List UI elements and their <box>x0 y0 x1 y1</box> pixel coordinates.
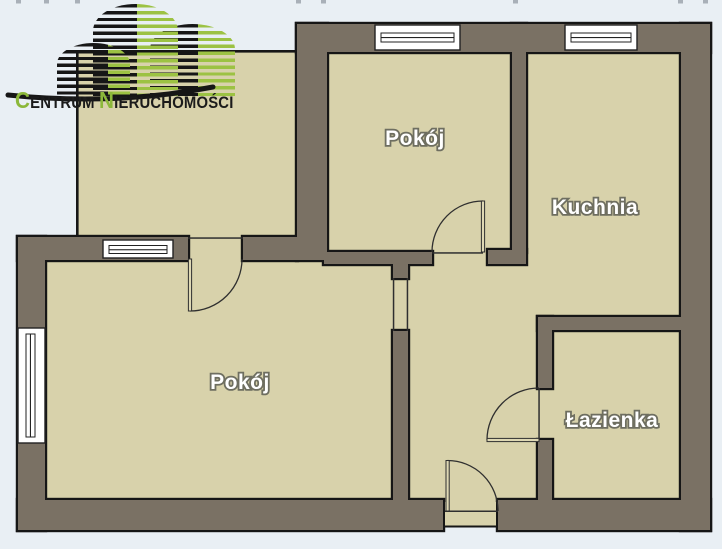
wall-hall-divider <box>393 331 408 503</box>
label-kitchen: Kuchnia <box>552 196 638 219</box>
floor-lower-rooms <box>43 237 683 502</box>
wall-divider-left <box>297 24 327 260</box>
label-bathroom: Łazienka <box>566 409 659 432</box>
window-top-2 <box>565 25 637 50</box>
wall-bottom-left <box>18 500 443 530</box>
brand-initial-n: N <box>99 87 114 113</box>
wall-bathroom-left <box>538 317 552 388</box>
wall-bathroom-top <box>538 317 681 330</box>
logo-brand-text: CENTRUM NIERUCHOMOŚCI <box>15 87 234 114</box>
window-middle <box>103 240 173 258</box>
brand-centrum: ENTRUM <box>30 94 95 112</box>
entrance-opening <box>445 502 496 526</box>
wall-bottom-right <box>498 500 710 530</box>
window-top-1 <box>375 25 460 50</box>
agency-logo: CENTRUM NIERUCHOMOŚCI <box>0 0 260 125</box>
floor-top-rooms <box>327 50 683 266</box>
label-room-top: Pokój <box>385 127 445 150</box>
label-room-main: Pokój <box>210 371 270 394</box>
wall-top <box>297 24 710 52</box>
wall-kitchen-divider <box>512 24 526 252</box>
wall-room-top-bottom <box>324 252 432 264</box>
floor-plan-page: Pokój Kuchnia Pokój Łazienka <box>0 0 722 549</box>
brand-initial-c: C <box>15 87 30 113</box>
wall-right-outer <box>681 24 710 530</box>
window-left <box>18 328 45 443</box>
brand-nieruchomosci: IERUCHOMOŚCI <box>114 94 233 112</box>
